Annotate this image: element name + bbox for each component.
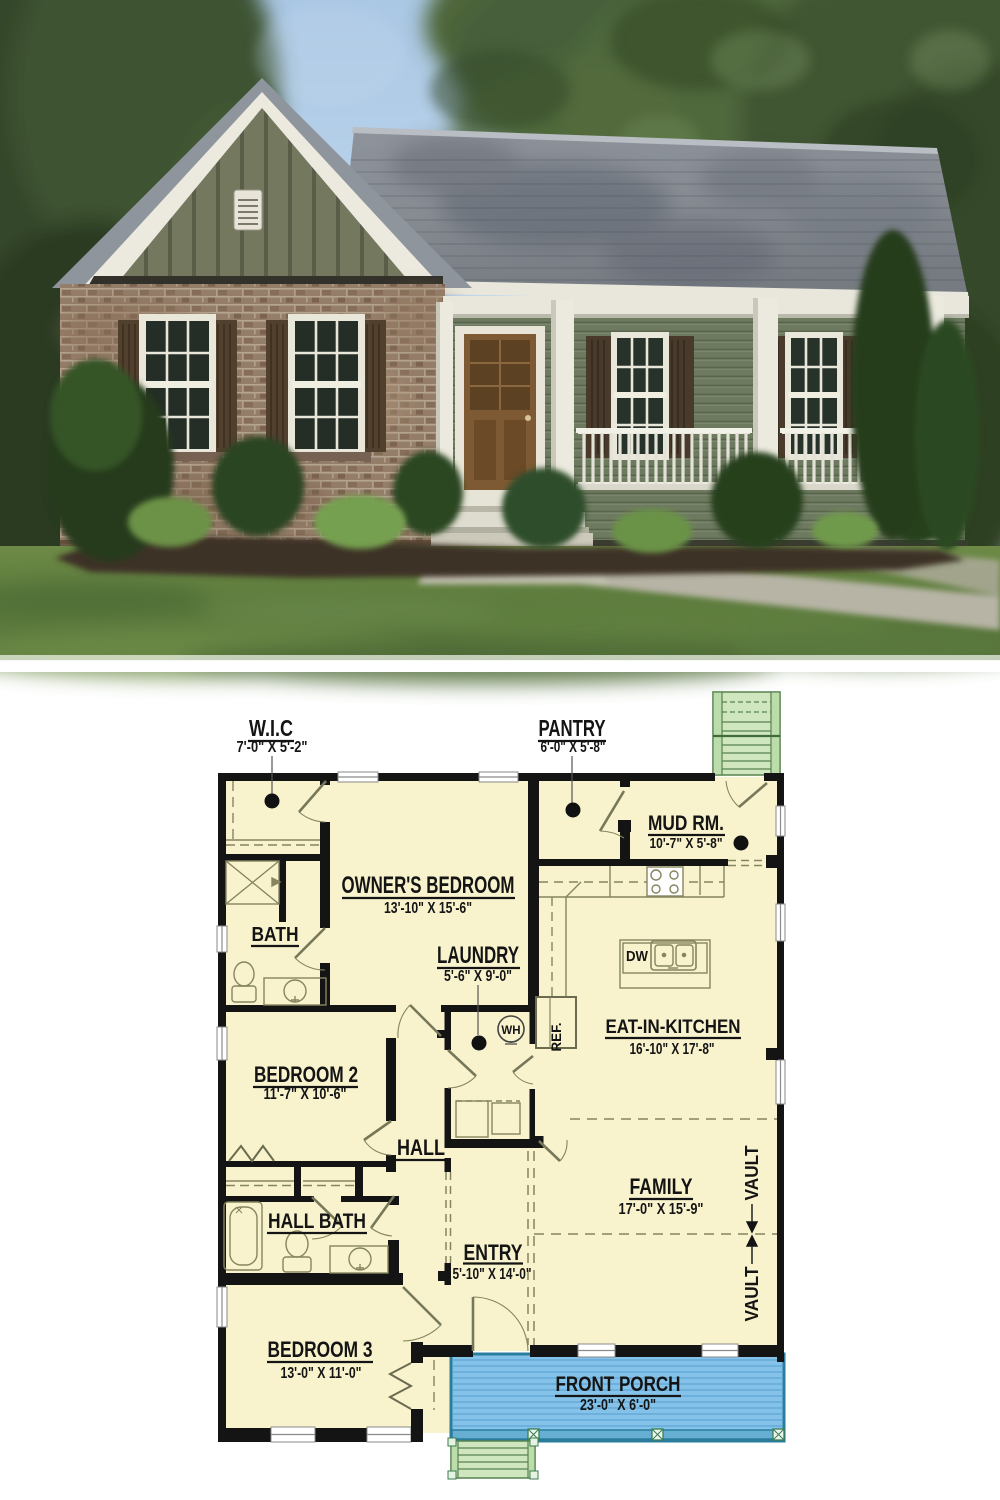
svg-text:W.I.C: W.I.C [249,715,293,741]
svg-text:7'-0" X 5'-2": 7'-0" X 5'-2" [237,739,308,756]
svg-text:HALL: HALL [397,1135,445,1160]
svg-text:REF.: REF. [549,1023,564,1052]
svg-text:10'-7" X 5'-8": 10'-7" X 5'-8" [650,835,723,852]
svg-text:PANTRY: PANTRY [539,715,606,741]
svg-text:LAUNDRY: LAUNDRY [437,942,519,969]
svg-text:BATH: BATH [252,924,299,946]
svg-text:EAT-IN-KITCHEN: EAT-IN-KITCHEN [606,1017,741,1038]
svg-text:5'-10" X 14'-0": 5'-10" X 14'-0" [453,1266,532,1283]
svg-text:11'-7" X 10'-6": 11'-7" X 10'-6" [264,1086,347,1103]
svg-text:BEDROOM 3: BEDROOM 3 [268,1337,373,1362]
svg-text:FAMILY: FAMILY [630,1174,693,1199]
svg-text:5'-6" X 9'-0": 5'-6" X 9'-0" [444,968,512,985]
svg-text:17'-0" X 15'-9": 17'-0" X 15'-9" [619,1201,704,1218]
svg-text:13'-0" X 11'-0": 13'-0" X 11'-0" [281,1365,362,1382]
svg-text:VAULT: VAULT [742,1146,762,1201]
svg-text:HALL BATH: HALL BATH [268,1210,366,1233]
svg-text:16'-10" X 17'-8": 16'-10" X 17'-8" [630,1041,715,1058]
svg-text:DW: DW [626,948,649,965]
svg-text:OWNER'S BEDROOM: OWNER'S BEDROOM [342,872,515,899]
svg-text:ENTRY: ENTRY [464,1240,523,1265]
svg-text:6'-0" X 5'-8": 6'-0" X 5'-8" [541,739,606,756]
svg-text:FRONT PORCH: FRONT PORCH [556,1373,681,1396]
svg-text:BEDROOM 2: BEDROOM 2 [254,1062,358,1087]
svg-text:MUD RM.: MUD RM. [648,812,724,835]
svg-text:WH: WH [501,1025,520,1037]
svg-text:VAULT: VAULT [742,1267,762,1322]
svg-text:13'-10" X 15'-6": 13'-10" X 15'-6" [384,900,472,917]
svg-text:23'-0" X 6'-0": 23'-0" X 6'-0" [580,1397,656,1414]
